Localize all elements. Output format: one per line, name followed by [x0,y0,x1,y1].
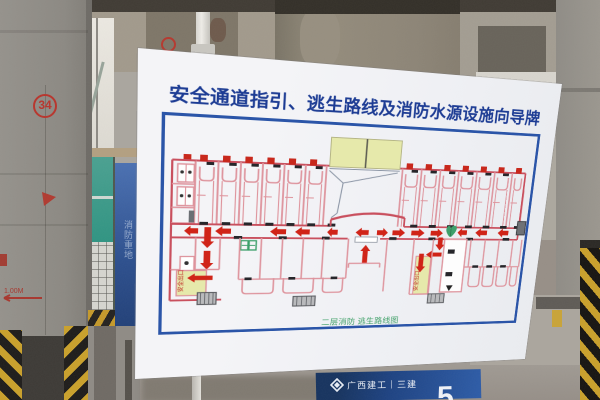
svg-text:安全出口: 安全出口 [176,270,185,292]
